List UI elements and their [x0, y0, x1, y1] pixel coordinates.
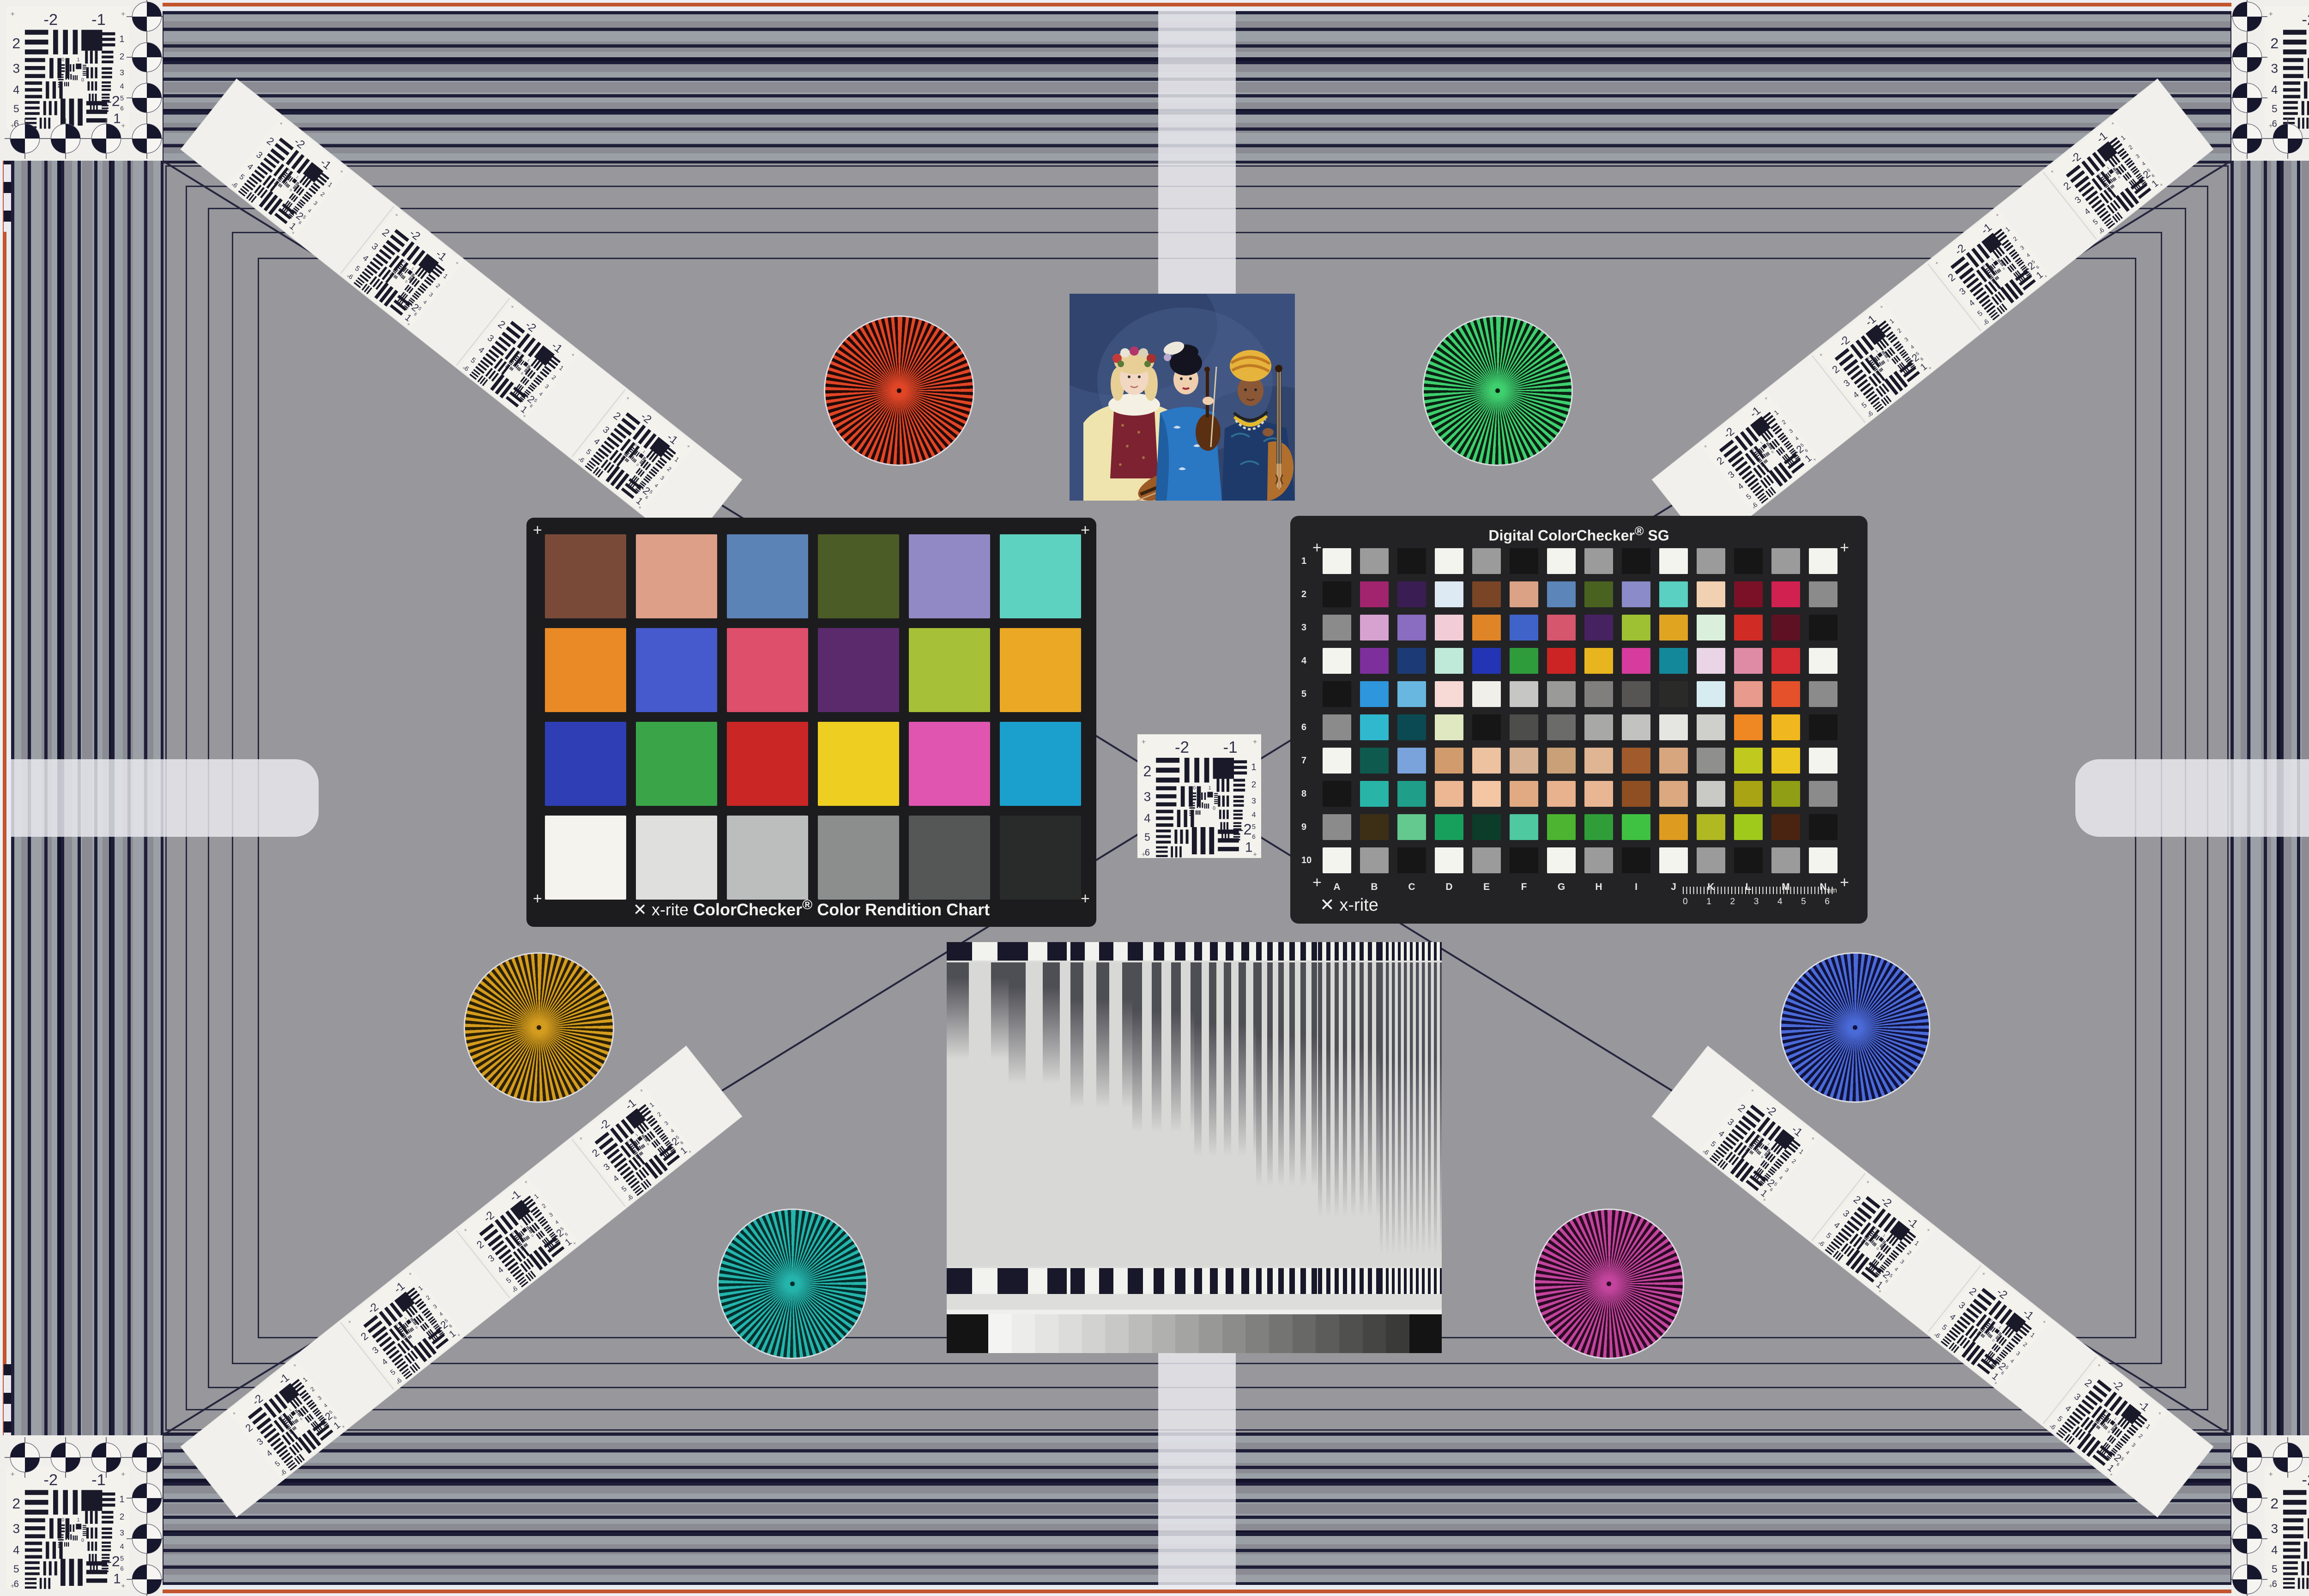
registered-mark: ®	[802, 897, 812, 913]
color-patch	[1510, 581, 1538, 607]
ruler-number: 4	[1777, 897, 1783, 907]
row-number: 2	[1301, 581, 1312, 615]
gray-step	[947, 1314, 988, 1353]
color-patch	[1547, 847, 1576, 873]
color-patch	[1435, 548, 1463, 574]
color-patch	[1472, 581, 1501, 607]
color-patch	[1697, 615, 1725, 641]
checker-row-top	[947, 942, 1442, 961]
color-patch	[1809, 748, 1838, 774]
color-patch	[1435, 748, 1463, 774]
color-patch	[1323, 714, 1351, 740]
colorchecker-24-chart: + + + + ✕ x-rite ColorChecker® Color Ren…	[526, 518, 1096, 927]
test-chart-scene: -2 -1 2 3 4 5 6 1 2 3 4 5 6 -2 1 0 1	[0, 0, 2309, 1596]
color-patch	[1435, 648, 1463, 674]
color-patch	[1659, 714, 1688, 740]
color-patch	[1622, 814, 1650, 840]
color-patch	[1000, 534, 1081, 618]
color-patch	[1771, 714, 1800, 740]
color-patch	[1697, 781, 1725, 807]
registration-plus: +	[533, 522, 542, 538]
color-patch	[1809, 581, 1838, 607]
color-patch	[1622, 847, 1650, 873]
color-patch	[1510, 847, 1538, 873]
color-patch	[1734, 814, 1763, 840]
color-patch	[1734, 648, 1763, 674]
color-patch	[1771, 748, 1800, 774]
colorchecker-24-patches	[545, 534, 1081, 900]
column-letter: F	[1510, 882, 1538, 893]
color-patch	[545, 628, 626, 712]
color-patch	[1734, 748, 1763, 774]
gray-step	[1129, 1314, 1152, 1353]
ruler-number: 6	[1825, 897, 1830, 907]
edge-tab-right	[2075, 759, 2309, 837]
color-patch	[1397, 814, 1426, 840]
gray-step	[1269, 1314, 1293, 1353]
color-patch	[1510, 748, 1538, 774]
color-patch	[1659, 814, 1688, 840]
siemens-star-red	[824, 315, 974, 466]
column-letter: A	[1323, 882, 1351, 893]
color-patch	[636, 628, 717, 712]
color-patch	[1472, 615, 1501, 641]
color-patch	[1472, 748, 1501, 774]
grayscale-step-wedge	[947, 1310, 1442, 1353]
color-patch	[1360, 714, 1389, 740]
color-patch	[1622, 615, 1650, 641]
column-letter: I	[1622, 882, 1650, 893]
color-patch	[1771, 581, 1800, 607]
corner-block-top-right	[2231, 0, 2309, 161]
siemens-star-magenta	[1534, 1209, 1684, 1359]
ruler-numbers: 0123456	[1683, 897, 1830, 907]
ruler-number: 2	[1730, 897, 1735, 907]
color-patch	[1435, 681, 1463, 707]
color-patch	[818, 816, 899, 900]
gray-step	[1035, 1314, 1058, 1353]
color-patch	[1622, 781, 1650, 807]
column-letter: G	[1547, 882, 1576, 893]
gray-step	[1222, 1314, 1246, 1353]
color-patch	[1435, 814, 1463, 840]
gray-step	[1245, 1314, 1269, 1353]
sg-ruler: 0123456 mm	[1683, 887, 1835, 910]
color-patch	[1734, 714, 1763, 740]
registration-plus: +	[1312, 875, 1322, 890]
color-patch	[1584, 681, 1613, 707]
color-patch	[1771, 814, 1800, 840]
column-letter: E	[1472, 882, 1501, 893]
color-patch	[1360, 748, 1389, 774]
xrite-logo-icon: ✕	[633, 900, 647, 919]
color-patch	[1584, 581, 1613, 607]
color-patch	[1472, 781, 1501, 807]
row-number: 5	[1301, 681, 1312, 714]
sg-brand: ✕ x-rite	[1320, 895, 1378, 915]
column-letter: H	[1584, 882, 1613, 893]
color-patch	[1360, 814, 1389, 840]
color-patch	[909, 534, 990, 618]
registration-plus: +	[1081, 522, 1090, 538]
color-patch	[1397, 847, 1426, 873]
color-patch	[1510, 681, 1538, 707]
color-patch	[727, 534, 808, 618]
color-patch	[1472, 714, 1501, 740]
registration-plus: +	[1840, 540, 1849, 556]
siemens-star-blue	[1780, 952, 1930, 1103]
color-patch	[1397, 714, 1426, 740]
column-letter: D	[1435, 882, 1463, 893]
chart-title: ColorChecker	[693, 900, 802, 919]
color-patch	[1435, 847, 1463, 873]
colorchecker-sg-chart: Digital ColorChecker® SG 12345678910 ABC…	[1290, 516, 1868, 924]
color-patch	[1323, 781, 1351, 807]
color-patch	[1584, 781, 1613, 807]
edge-tab-left	[6, 759, 319, 837]
gray-step	[1339, 1314, 1363, 1353]
gray-step	[1293, 1314, 1316, 1353]
gray-step	[1152, 1314, 1176, 1353]
ruler-number: 0	[1683, 897, 1688, 907]
row-number: 10	[1301, 847, 1312, 881]
corner-block-top-left	[0, 0, 163, 161]
color-patch	[1734, 781, 1763, 807]
color-patch	[1697, 548, 1725, 574]
color-patch	[545, 534, 626, 618]
portrait-test-photo	[1070, 294, 1295, 501]
color-patch	[1809, 648, 1838, 674]
color-patch	[1323, 847, 1351, 873]
color-patch	[1809, 781, 1838, 807]
chart-subtitle: Color Rendition Chart	[817, 900, 990, 919]
color-patch	[1584, 814, 1613, 840]
color-patch	[727, 816, 808, 900]
ruler-unit: mm	[1825, 887, 1837, 895]
color-patch	[1734, 581, 1763, 607]
color-patch	[1360, 581, 1389, 607]
color-patch	[1809, 847, 1838, 873]
color-patch	[1397, 581, 1426, 607]
color-patch	[1809, 615, 1838, 641]
color-patch	[1622, 714, 1650, 740]
color-patch	[1734, 847, 1763, 873]
frequency-sweep-chart	[947, 942, 1442, 1350]
color-patch	[1659, 847, 1688, 873]
color-patch	[1547, 648, 1576, 674]
color-patch	[1771, 648, 1800, 674]
color-patch	[1771, 548, 1800, 574]
row-number: 3	[1301, 615, 1312, 648]
color-patch	[1659, 648, 1688, 674]
color-patch	[1323, 681, 1351, 707]
row-number: 1	[1301, 548, 1312, 581]
column-letter: B	[1360, 882, 1389, 893]
color-patch	[1734, 615, 1763, 641]
color-patch	[1435, 615, 1463, 641]
color-patch	[1771, 847, 1800, 873]
color-patch	[1472, 681, 1501, 707]
color-patch	[1360, 548, 1389, 574]
sg-row-numbers: 12345678910	[1301, 548, 1312, 881]
color-patch	[818, 628, 899, 712]
brand-text: x-rite	[652, 900, 689, 919]
color-patch	[1584, 748, 1613, 774]
color-patch	[1584, 615, 1613, 641]
colorchecker-24-label: ✕ x-rite ColorChecker® Color Rendition C…	[526, 897, 1096, 919]
color-patch	[1323, 548, 1351, 574]
gray-step	[1363, 1314, 1386, 1353]
color-patch	[636, 722, 717, 806]
color-patch	[1472, 648, 1501, 674]
color-patch	[1435, 581, 1463, 607]
gray-step	[988, 1314, 1012, 1353]
color-patch	[1584, 548, 1613, 574]
gray-step	[1058, 1314, 1082, 1353]
column-letter: C	[1397, 882, 1426, 893]
color-patch	[1809, 714, 1838, 740]
color-patch	[545, 722, 626, 806]
color-patch	[1510, 548, 1538, 574]
color-patch	[1510, 781, 1538, 807]
color-patch	[1397, 748, 1426, 774]
color-patch	[1547, 548, 1576, 574]
color-patch	[1510, 648, 1538, 674]
xrite-logo-icon: ✕	[1320, 895, 1335, 915]
color-patch	[1472, 814, 1501, 840]
color-patch	[1809, 814, 1838, 840]
row-number: 4	[1301, 648, 1312, 681]
color-patch	[1771, 781, 1800, 807]
row-number: 8	[1301, 781, 1312, 814]
color-patch	[1397, 548, 1426, 574]
row-number: 9	[1301, 814, 1312, 847]
color-patch	[1472, 548, 1501, 574]
color-patch	[1397, 681, 1426, 707]
color-patch	[1000, 816, 1081, 900]
color-patch	[1000, 722, 1081, 806]
color-patch	[1659, 748, 1688, 774]
color-patch	[909, 722, 990, 806]
color-patch	[636, 816, 717, 900]
color-patch	[1323, 648, 1351, 674]
color-patch	[1360, 615, 1389, 641]
corner-block-bottom-right	[2231, 1435, 2309, 1596]
color-patch	[1360, 781, 1389, 807]
gray-step	[1409, 1314, 1442, 1353]
registration-plus: +	[1840, 875, 1849, 890]
sg-title: Digital ColorChecker® SG	[1290, 524, 1868, 544]
color-patch	[1659, 681, 1688, 707]
color-patch	[1360, 681, 1389, 707]
checker-row-bottom	[947, 1268, 1442, 1294]
sweep-area	[947, 962, 1442, 1266]
color-patch	[1659, 581, 1688, 607]
color-patch	[1397, 648, 1426, 674]
color-patch	[1397, 781, 1426, 807]
color-patch	[1734, 548, 1763, 574]
gray-step	[1082, 1314, 1106, 1353]
color-patch	[1360, 847, 1389, 873]
color-patch	[1584, 648, 1613, 674]
color-patch	[1622, 681, 1650, 707]
color-patch	[1435, 781, 1463, 807]
color-patch	[1510, 814, 1538, 840]
color-patch	[1547, 714, 1576, 740]
gray-step	[1386, 1314, 1409, 1353]
gray-step	[1012, 1314, 1035, 1353]
siemens-star-gold	[464, 952, 614, 1103]
corner-block-bottom-left	[0, 1435, 163, 1596]
color-patch	[1323, 748, 1351, 774]
color-patch	[1697, 847, 1725, 873]
color-patch	[1697, 714, 1725, 740]
color-patch	[1547, 615, 1576, 641]
color-patch	[1547, 681, 1576, 707]
color-patch	[1323, 615, 1351, 641]
color-patch	[727, 722, 808, 806]
ruler-number: 3	[1754, 897, 1759, 907]
color-patch	[1771, 615, 1800, 641]
ruler-number: 1	[1706, 897, 1711, 907]
color-patch	[1000, 628, 1081, 712]
color-patch	[1809, 681, 1838, 707]
gray-step	[1175, 1314, 1199, 1353]
color-patch	[1584, 847, 1613, 873]
color-patch	[1510, 714, 1538, 740]
color-patch	[1809, 548, 1838, 574]
sg-patches	[1323, 548, 1838, 873]
color-patch	[909, 628, 990, 712]
color-patch	[1771, 681, 1800, 707]
color-patch	[818, 722, 899, 806]
color-patch	[1622, 648, 1650, 674]
color-patch	[545, 816, 626, 900]
color-patch	[909, 816, 990, 900]
color-patch	[1622, 748, 1650, 774]
color-patch	[1547, 748, 1576, 774]
color-patch	[1323, 814, 1351, 840]
color-patch	[1435, 714, 1463, 740]
gray-step	[1199, 1314, 1222, 1353]
color-patch	[1734, 681, 1763, 707]
color-patch	[1510, 615, 1538, 641]
registered-mark: ®	[1635, 524, 1644, 538]
color-patch	[636, 534, 717, 618]
color-patch	[1547, 781, 1576, 807]
row-number: 6	[1301, 714, 1312, 748]
siemens-star-green	[1422, 315, 1573, 466]
color-patch	[1697, 681, 1725, 707]
edge-tab-top	[1158, 6, 1236, 319]
color-patch	[1472, 847, 1501, 873]
color-patch	[1622, 548, 1650, 574]
registration-plus: +	[1312, 540, 1322, 556]
color-patch	[1360, 648, 1389, 674]
color-patch	[1659, 548, 1688, 574]
gray-step	[1105, 1314, 1129, 1353]
ruler-ticks	[1683, 887, 1835, 894]
gray-step	[1316, 1314, 1339, 1353]
color-patch	[1697, 648, 1725, 674]
color-patch	[1659, 781, 1688, 807]
color-patch	[1547, 814, 1576, 840]
siemens-star-teal	[717, 1209, 868, 1359]
color-patch	[1697, 748, 1725, 774]
ruler-number: 5	[1801, 897, 1806, 907]
color-patch	[1697, 581, 1725, 607]
color-patch	[1547, 581, 1576, 607]
color-patch	[1397, 615, 1426, 641]
color-patch	[727, 628, 808, 712]
color-patch	[818, 534, 899, 618]
color-patch	[1323, 581, 1351, 607]
color-patch	[1584, 714, 1613, 740]
color-patch	[1697, 814, 1725, 840]
color-patch	[1622, 581, 1650, 607]
color-patch	[1659, 615, 1688, 641]
row-number: 7	[1301, 748, 1312, 781]
center-usaf-target	[1137, 734, 1262, 858]
